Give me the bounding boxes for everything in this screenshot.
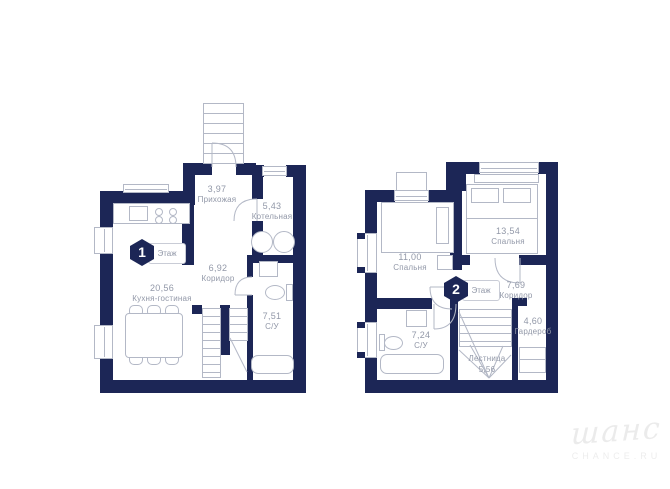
- bathtub-icon: [380, 354, 444, 374]
- window: [94, 325, 113, 359]
- dining-table: [125, 313, 183, 358]
- stove-burner-icon: [155, 216, 163, 224]
- watermark-logo: шанс: [571, 411, 663, 453]
- room-label-bathroom1: 7,51 С/У: [227, 311, 317, 332]
- watermark-domain: CHANCE.RU: [571, 451, 662, 461]
- stair-diagonal: [230, 338, 247, 372]
- room-label-corridor1: 6,92 Коридор: [173, 263, 263, 284]
- window-jamb: [357, 352, 365, 358]
- wall: [519, 255, 546, 265]
- bathtub-icon: [251, 355, 294, 374]
- wall: [377, 298, 432, 309]
- room-label-stairs2: Лестница 5,56: [442, 354, 532, 375]
- bay-window: [396, 172, 427, 191]
- window-jamb: [357, 322, 365, 328]
- stove-burner-icon: [169, 216, 177, 224]
- pillow: [503, 188, 531, 203]
- wall: [365, 380, 558, 393]
- wall: [100, 191, 113, 393]
- room-label-bathroom2: 7,24 С/У: [376, 330, 466, 351]
- boiler-unit-icon: [251, 231, 273, 253]
- room-label-bedroom-big: 13,54 Спальня: [463, 226, 553, 247]
- stairs: [202, 308, 221, 378]
- kitchen-counter: [113, 203, 190, 224]
- pillow: [436, 207, 449, 244]
- window: [394, 190, 429, 201]
- boiler-unit-icon: [273, 231, 295, 253]
- wall: [546, 162, 558, 393]
- window: [94, 227, 113, 254]
- room-label-boiler: 5,43 Котельная: [227, 201, 317, 222]
- wall: [100, 380, 306, 393]
- blanket-line: [467, 218, 537, 219]
- window-sill: [474, 174, 539, 183]
- wall: [462, 255, 470, 265]
- watermark: шанс CHANCE.RU: [571, 414, 662, 461]
- wall: [293, 165, 306, 393]
- toilet-tank-icon: [286, 284, 293, 301]
- wall: [365, 190, 395, 202]
- wall: [538, 162, 558, 174]
- room-label-kitchen-living: 20,56 Кухня-гостиная: [117, 283, 207, 304]
- kitchen-sink-icon: [129, 206, 148, 221]
- stove-burner-icon: [155, 208, 163, 216]
- window-jamb: [357, 233, 365, 239]
- wall: [192, 305, 202, 314]
- wall: [446, 162, 466, 191]
- floorplan-canvas: Этаж 1 3,97 Прихожая 5,43 Котельная 6,92…: [0, 0, 670, 489]
- wall: [365, 191, 377, 393]
- room-label-wardrobe: 4,60 Гардероб: [488, 316, 578, 337]
- window: [262, 166, 287, 176]
- entrance-stairs: [203, 103, 244, 164]
- stove-burner-icon: [169, 208, 177, 216]
- window: [479, 162, 539, 173]
- wall: [195, 163, 212, 175]
- window: [123, 184, 169, 193]
- floor-label: Этаж: [471, 286, 490, 295]
- sink-icon: [406, 310, 427, 327]
- wall: [286, 165, 306, 177]
- room-label-bedroom-small: 11,00 Спальня: [365, 252, 455, 273]
- floor-label: Этаж: [157, 249, 176, 258]
- window-jamb: [357, 267, 365, 273]
- toilet-icon: [265, 285, 285, 300]
- pillow: [471, 188, 499, 203]
